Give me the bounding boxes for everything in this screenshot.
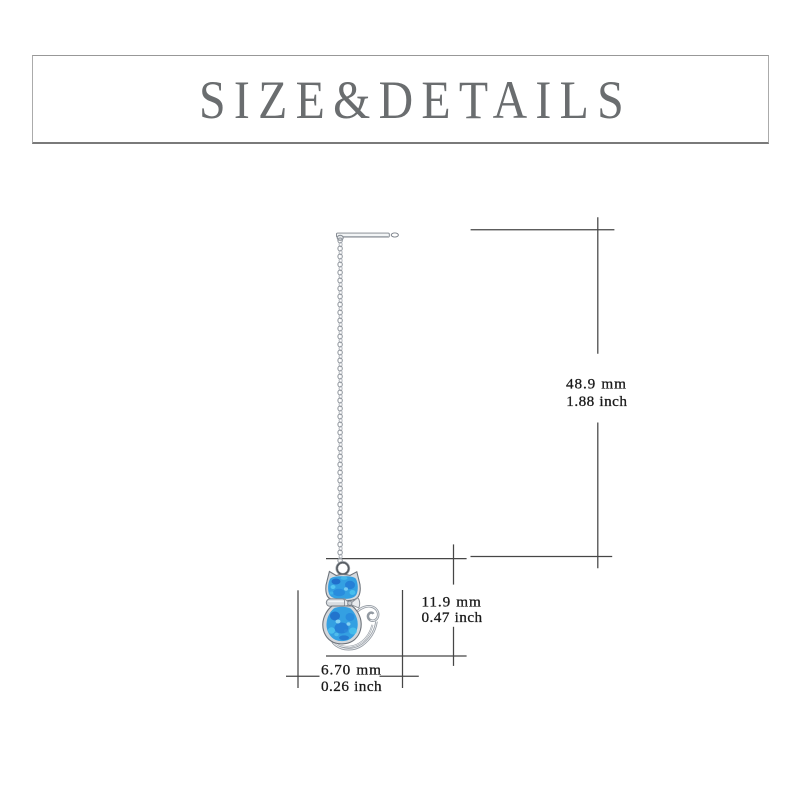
svg-text:1.88 inch: 1.88 inch (566, 393, 627, 410)
svg-text:0.47 inch: 0.47 inch (422, 609, 483, 626)
svg-text:0.26 inch: 0.26 inch (321, 678, 382, 695)
svg-text:48.9 mm: 48.9 mm (566, 376, 627, 393)
svg-text:6.70 mm: 6.70 mm (321, 661, 382, 678)
